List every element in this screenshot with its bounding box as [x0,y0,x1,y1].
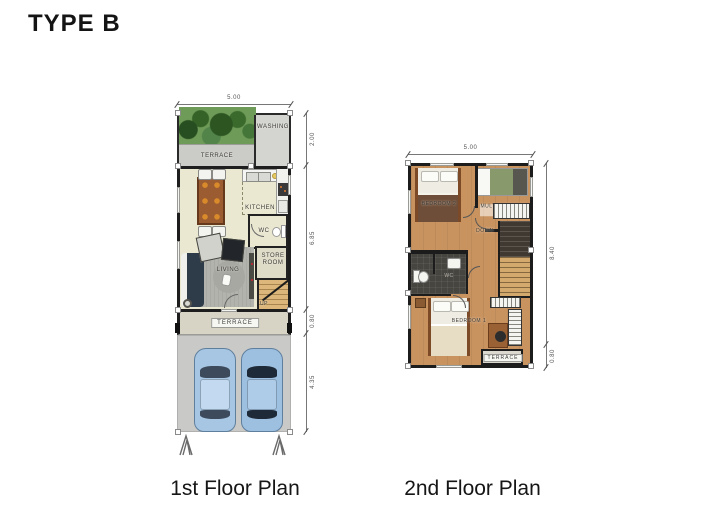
dimension-line-height-first [306,113,307,432]
store-room-label: STORE ROOM [260,253,286,267]
floor-plan-sheet: TYPE B 5.00 TERRACE WASHING [0,0,720,514]
window [177,187,180,213]
floor-plant [183,299,192,308]
bedroom1-label: BEDROOM 1 [452,318,487,324]
up-label: UP [260,301,268,307]
room-washing: WASHING [254,115,289,166]
column-post [175,307,181,313]
dining-chair [198,169,212,180]
door-opening [221,309,237,312]
room-wc-first: WC [248,214,288,249]
car-top-view [194,348,236,432]
column-post [405,247,411,253]
dimension-top-section: 2.00 [310,132,316,146]
first-floor-plan: 5.00 TERRACE WASHING [175,95,325,470]
window [530,177,533,197]
dimension-line-width-second: 5.00 [408,154,533,155]
bedroom2-label: BEDROOM 2 [422,201,457,207]
column-post [287,163,293,169]
stairs-down [498,221,530,296]
column-post [287,307,293,313]
column-post [405,160,411,166]
column-post [175,429,181,435]
door-arc [463,206,475,218]
nightstand [415,298,426,308]
terrace-second-label: TERRACE [484,354,523,362]
window [177,241,180,269]
garden-planting [179,107,256,146]
column-post [248,163,254,169]
column-post [528,160,534,166]
kitchen-label: KITCHEN [245,205,275,211]
dining-table [197,177,225,225]
toilet [281,225,286,238]
column-post [287,110,293,116]
column-post [528,247,534,253]
desk-chair [495,331,506,342]
kitchen-sink-counter [242,169,278,182]
second-floor-plan: 5.00 BEDROOM 2 MULTIPURPOSE ROOM [400,145,565,380]
window [408,190,411,214]
page-title: TYPE B [28,10,121,38]
dimension-terrace: 0.80 [310,314,316,328]
carport-post [271,434,289,456]
wc-second-label: WC [444,273,453,279]
refrigerator [278,200,288,213]
first-floor-caption: 1st Floor Plan [150,477,320,501]
dining-chair [212,169,226,180]
daybed-multipurpose [477,168,528,196]
carport-post [178,434,196,456]
dimension-main: 6.85 [310,231,316,245]
wardrobe-multipurpose [493,203,530,219]
room-wc-second: WC [411,252,468,294]
top-section: TERRACE WASHING [177,113,291,168]
dimension-width-second: 5.00 [408,145,533,151]
window [430,163,454,166]
washing-label: WASHING [257,124,289,130]
column-post [528,363,534,369]
window [408,305,411,329]
stove [278,183,288,196]
dimension-width-first: 5.00 [177,95,291,101]
column-post [405,290,411,296]
window [288,175,291,195]
car-top-view [241,348,283,432]
column-post [175,163,181,169]
second-floor-caption: 2nd Floor Plan [385,477,560,501]
wall [475,166,478,208]
wall-end [175,323,180,333]
wall-end [287,323,292,333]
door-arc [251,224,264,237]
dimension-line-height-second [546,163,547,368]
column-post [287,429,293,435]
door-arc [453,295,466,308]
second-floor-building: BEDROOM 2 MULTIPURPOSE ROOM DOWN WC [408,163,533,368]
living-label: LIVING [217,267,240,273]
dimension-line-width-first: 5.00 [177,104,291,105]
tv-console [249,253,254,299]
dimension-terrace-second: 0.80 [550,349,556,363]
wardrobe-bedroom1 [508,309,522,346]
main-floor-section: KITCHEN DINING WC STORE ROOM [177,166,291,312]
room-terrace-garden: TERRACE [179,144,256,166]
window [486,163,508,166]
door-arc [468,266,480,278]
bed-bedroom2 [415,168,461,222]
room-terrace-second: TERRACE [481,349,523,365]
column-post [175,110,181,116]
dimension-main-second: 8.40 [550,246,556,260]
column-post [405,363,411,369]
dimension-carport: 4.35 [310,375,316,389]
window [436,365,462,368]
carport [177,335,291,432]
lounge-chair-dark [221,238,245,262]
shelf-unit [490,297,521,308]
toilet-bowl [272,227,281,237]
terrace-front-label: TERRACE [211,318,259,328]
terrace-garden-label: TERRACE [201,153,233,159]
room-store: STORE ROOM [255,246,288,280]
room-terrace-front: TERRACE [177,312,291,335]
